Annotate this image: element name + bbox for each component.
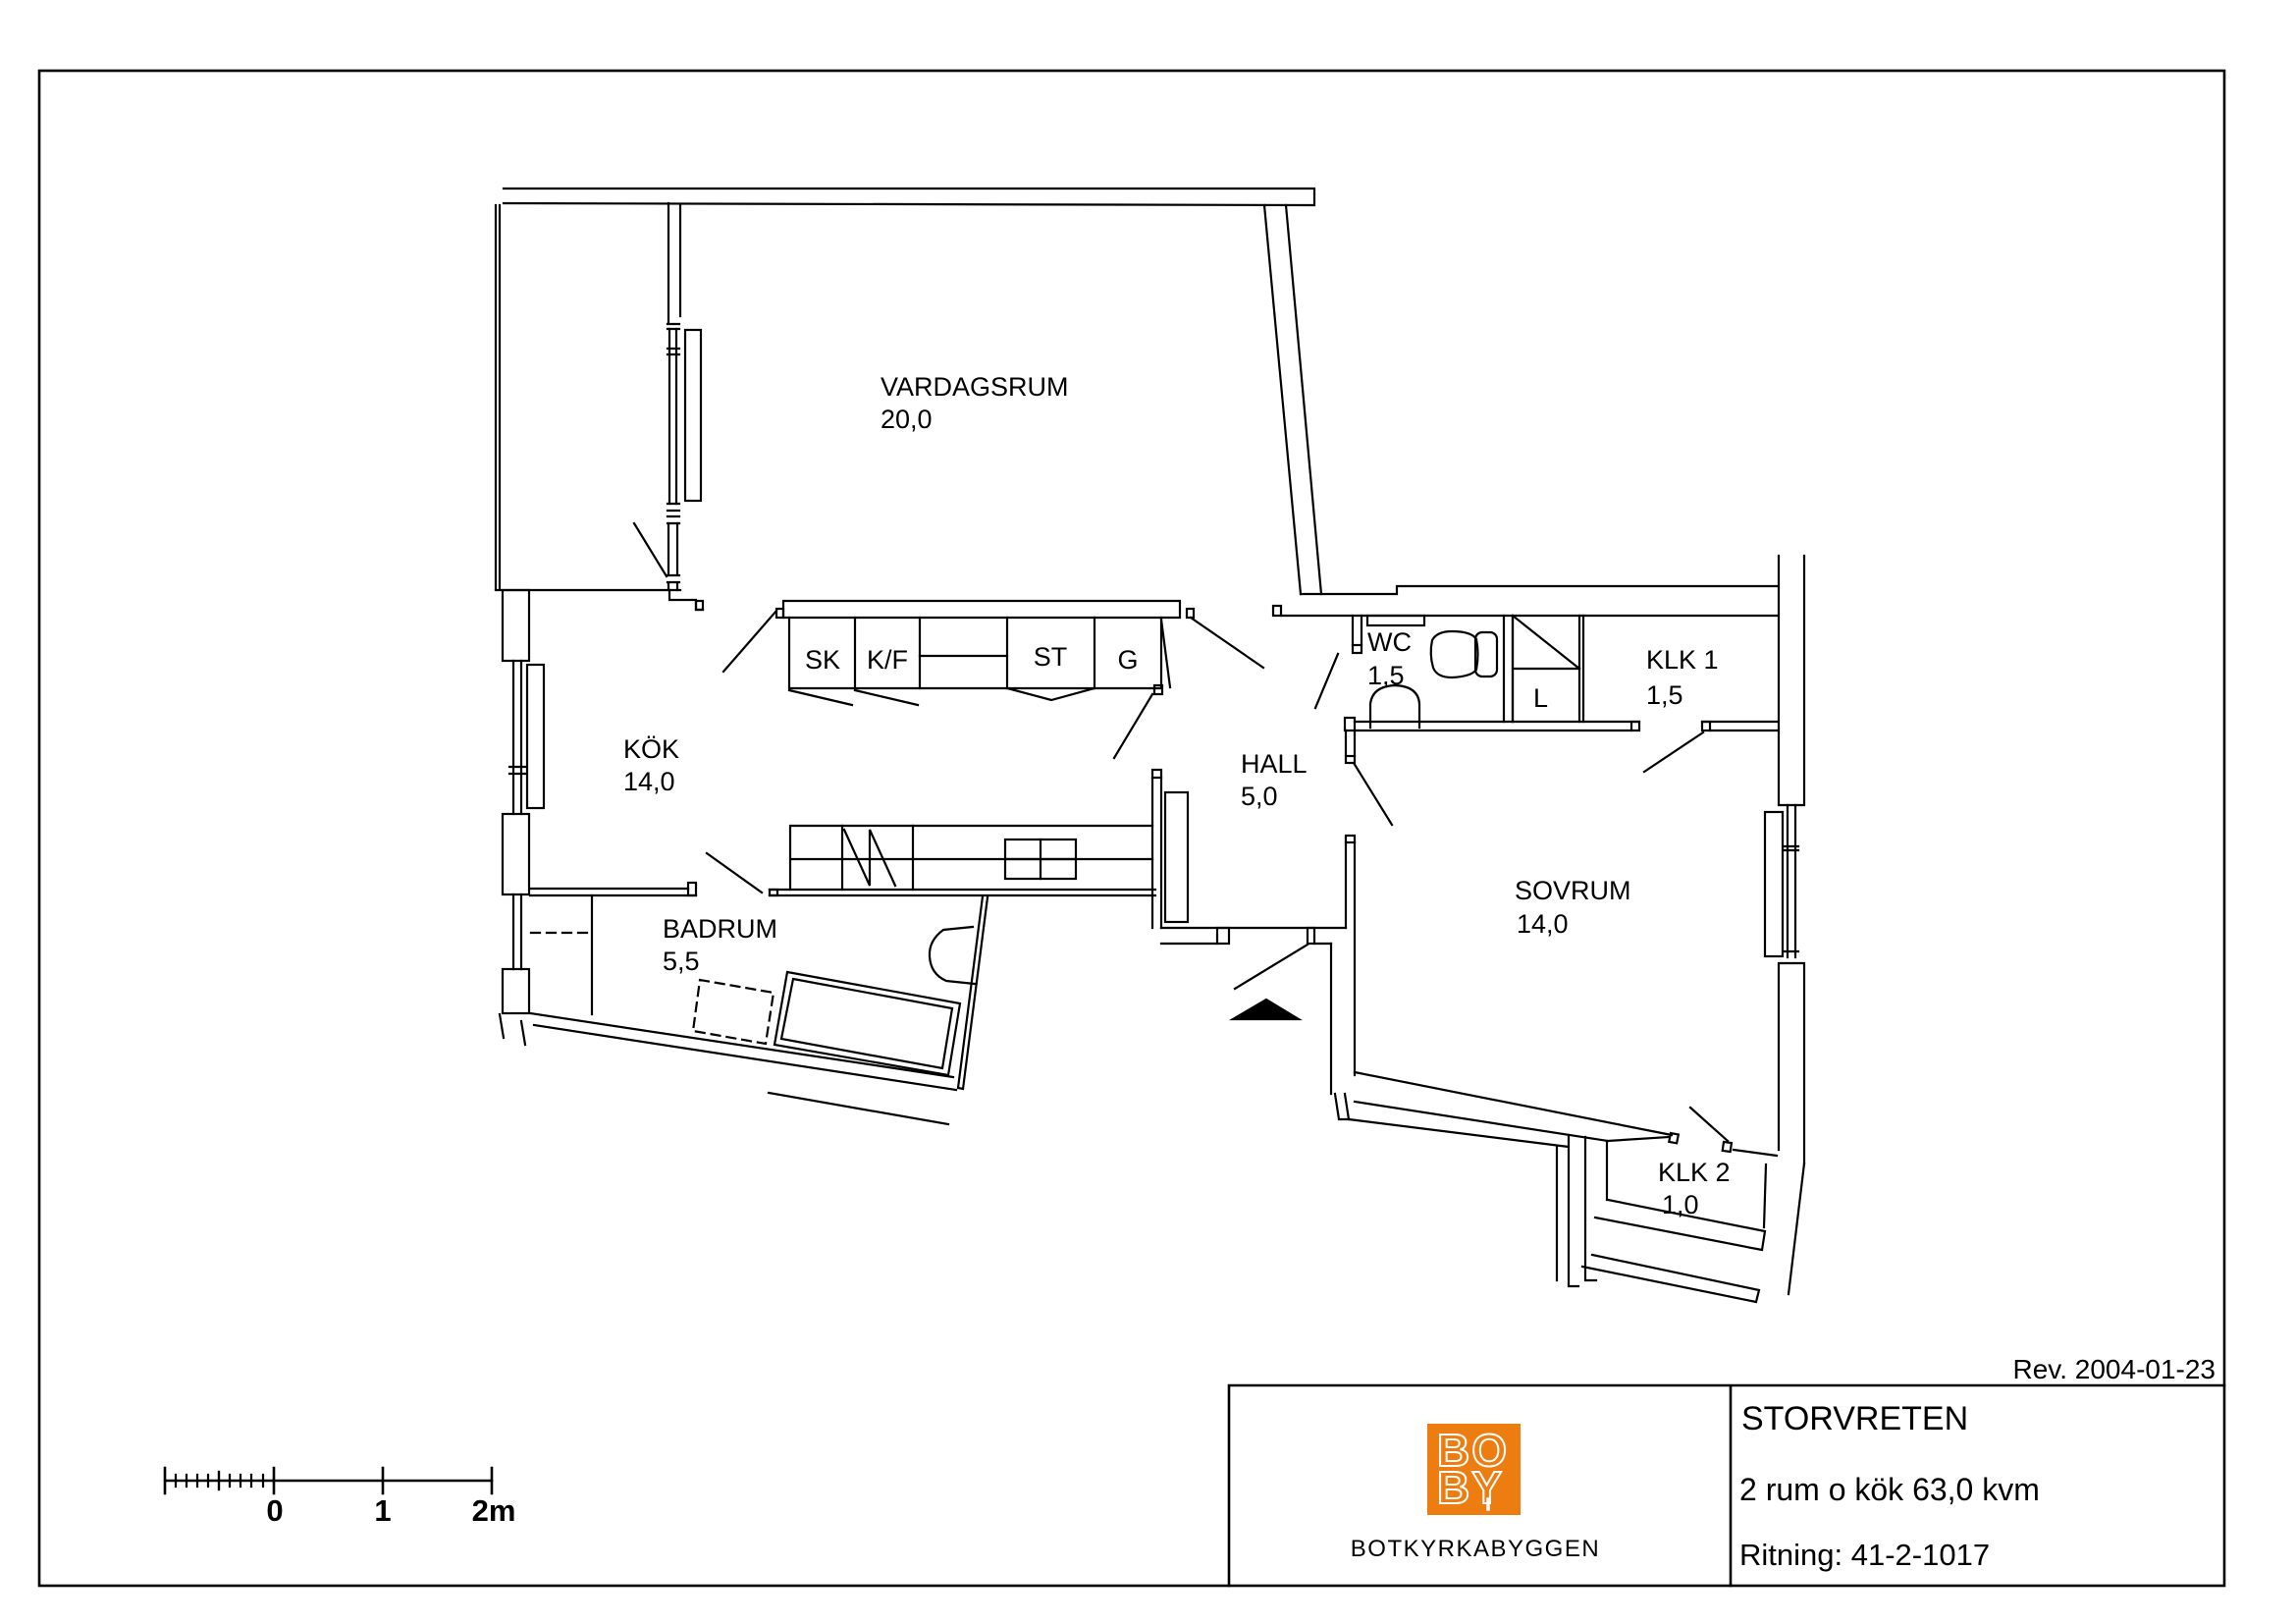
svg-text:0: 0 <box>266 1493 283 1528</box>
svg-text:20,0: 20,0 <box>881 405 933 434</box>
svg-text:SK: SK <box>805 645 840 675</box>
svg-text:K/F: K/F <box>867 645 908 675</box>
svg-text:L: L <box>1533 683 1548 713</box>
svg-text:ST: ST <box>1034 642 1068 672</box>
svg-text:1,5: 1,5 <box>1367 661 1405 690</box>
svg-text:BADRUM: BADRUM <box>663 914 777 944</box>
svg-text:14,0: 14,0 <box>1517 909 1569 939</box>
svg-text:5,0: 5,0 <box>1241 782 1278 811</box>
svg-text:WC: WC <box>1367 627 1412 657</box>
svg-text:BOTKYRKABYGGEN: BOTKYRKABYGGEN <box>1351 1536 1600 1562</box>
svg-text:Ritning: 41-2-1017: Ritning: 41-2-1017 <box>1739 1538 1990 1572</box>
svg-text:KÖK: KÖK <box>623 734 679 764</box>
svg-text:SOVRUM: SOVRUM <box>1515 876 1631 905</box>
svg-text:G: G <box>1117 645 1138 675</box>
svg-text:KLK 1: KLK 1 <box>1646 645 1719 675</box>
svg-text:1,5: 1,5 <box>1646 680 1683 710</box>
svg-text:HALL: HALL <box>1241 749 1308 779</box>
svg-text:5,5: 5,5 <box>663 947 700 976</box>
svg-text:STORVRETEN: STORVRETEN <box>1741 1400 1968 1437</box>
svg-text:KLK 2: KLK 2 <box>1658 1158 1731 1187</box>
svg-text:14,0: 14,0 <box>623 767 675 796</box>
svg-text:2m: 2m <box>472 1493 516 1528</box>
svg-text:BY: BY <box>1437 1462 1504 1513</box>
svg-text:1,0: 1,0 <box>1662 1190 1699 1219</box>
svg-text:1: 1 <box>374 1493 391 1528</box>
svg-text:2 rum o kök 63,0 kvm: 2 rum o kök 63,0 kvm <box>1739 1472 2040 1507</box>
svg-text:Rev. 2004-01-23: Rev. 2004-01-23 <box>2013 1354 2216 1384</box>
svg-text:VARDAGSRUM: VARDAGSRUM <box>881 372 1069 402</box>
